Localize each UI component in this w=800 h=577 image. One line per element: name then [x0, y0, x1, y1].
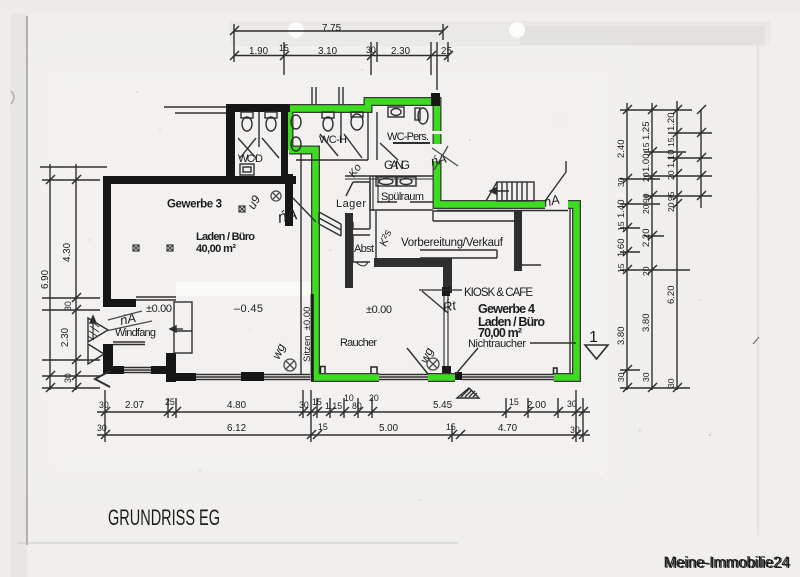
- svg-text:30: 30: [63, 373, 73, 383]
- svg-text:20: 20: [641, 266, 651, 276]
- svg-text:Sitzen ±0.00: Sitzen ±0.00: [302, 307, 313, 362]
- svg-text:30: 30: [641, 372, 651, 382]
- svg-text:20: 20: [666, 170, 676, 180]
- svg-text:30: 30: [616, 372, 626, 382]
- svg-text:Abst: Abst: [354, 243, 374, 255]
- svg-text:3.80: 3.80: [641, 314, 652, 333]
- svg-text:4.70: 4.70: [498, 423, 518, 434]
- svg-text:90: 90: [641, 193, 651, 203]
- svg-text:20: 20: [666, 202, 676, 212]
- svg-text:3.80: 3.80: [616, 327, 627, 346]
- svg-text:15: 15: [641, 142, 651, 152]
- svg-text:Spülraum: Spülraum: [381, 191, 424, 203]
- svg-text:15: 15: [616, 263, 626, 273]
- svg-text:–0.45: –0.45: [234, 303, 263, 315]
- svg-text:95: 95: [666, 191, 676, 201]
- svg-text:15: 15: [616, 221, 626, 231]
- svg-text:Gewerbe 4: Gewerbe 4: [478, 302, 535, 316]
- svg-text:6.12: 6.12: [227, 423, 246, 434]
- svg-text:2.20: 2.20: [641, 229, 652, 248]
- svg-text:25: 25: [441, 46, 452, 57]
- svg-text:2.40: 2.40: [616, 140, 627, 159]
- svg-text:KIOSK & CAFE: KIOSK & CAFE: [464, 287, 533, 299]
- svg-text:30: 30: [99, 400, 109, 410]
- svg-text:Meine-Immobilie24: Meine-Immobilie24: [665, 555, 791, 572]
- svg-text:25: 25: [165, 397, 175, 407]
- svg-text:GANG: GANG: [384, 158, 410, 172]
- svg-text:6.90: 6.90: [40, 269, 51, 289]
- svg-text:15: 15: [279, 43, 289, 53]
- svg-text:5.00: 5.00: [379, 423, 399, 434]
- svg-text:±0.00: ±0.00: [366, 304, 392, 316]
- svg-text:15: 15: [318, 422, 328, 432]
- svg-text:3.10: 3.10: [318, 46, 338, 57]
- svg-text:1: 1: [589, 329, 598, 346]
- svg-text:30: 30: [567, 399, 577, 409]
- svg-text:WC-D: WC-D: [238, 153, 263, 165]
- svg-text:Vorbereitung/Verkauf: Vorbereitung/Verkauf: [401, 237, 504, 249]
- svg-text:Gewerbe 3: Gewerbe 3: [167, 199, 222, 211]
- svg-text:1.40: 1.40: [616, 200, 627, 219]
- svg-text:15: 15: [666, 137, 676, 147]
- svg-text:WC-Pers.: WC-Pers.: [387, 131, 429, 143]
- svg-text:80: 80: [352, 401, 362, 411]
- svg-text:30: 30: [666, 378, 676, 388]
- svg-text:1.15: 1.15: [325, 401, 342, 411]
- svg-text:20: 20: [641, 172, 651, 182]
- svg-text:2.30: 2.30: [60, 327, 71, 347]
- svg-text:30: 30: [97, 423, 107, 433]
- svg-text:30: 30: [63, 301, 73, 311]
- svg-text:4.30: 4.30: [62, 242, 73, 262]
- svg-text:20: 20: [641, 204, 651, 214]
- svg-text:40,00 m²: 40,00 m²: [196, 243, 236, 255]
- svg-text:1.20: 1.20: [666, 113, 677, 132]
- svg-text:Raucher: Raucher: [340, 337, 377, 349]
- svg-text:GRUNDRISS EG: GRUNDRISS EG: [108, 505, 220, 530]
- svg-text:30: 30: [570, 425, 580, 435]
- svg-text:5.45: 5.45: [433, 400, 453, 411]
- svg-text:2.30: 2.30: [391, 46, 411, 57]
- svg-text:Nichtraucher: Nichtraucher: [468, 338, 526, 350]
- svg-text:15: 15: [446, 422, 456, 432]
- svg-text:Lager: Lager: [336, 198, 366, 210]
- svg-text:15: 15: [509, 397, 519, 407]
- svg-text:1.10: 1.10: [666, 150, 677, 169]
- svg-text:1.00: 1.00: [641, 154, 652, 173]
- svg-text:±0.00: ±0.00: [146, 303, 172, 315]
- svg-text:30: 30: [616, 177, 626, 187]
- svg-text:15: 15: [312, 397, 322, 407]
- svg-text:WC-H: WC-H: [319, 134, 347, 146]
- svg-text:2.00: 2.00: [527, 400, 547, 411]
- svg-text:Laden / Büro: Laden / Büro: [196, 231, 255, 243]
- svg-text:20: 20: [369, 393, 379, 403]
- svg-text:7.75: 7.75: [322, 23, 342, 34]
- svg-text:30: 30: [299, 400, 309, 410]
- svg-text:4.80: 4.80: [227, 400, 247, 411]
- svg-text:30: 30: [366, 45, 376, 55]
- svg-text:6.20: 6.20: [666, 286, 677, 305]
- svg-text:Windfang: Windfang: [115, 327, 156, 339]
- svg-text:1.60: 1.60: [616, 239, 627, 258]
- svg-text:1.90: 1.90: [249, 46, 269, 57]
- svg-text:1.25: 1.25: [641, 122, 652, 141]
- svg-text:2.07: 2.07: [125, 400, 144, 411]
